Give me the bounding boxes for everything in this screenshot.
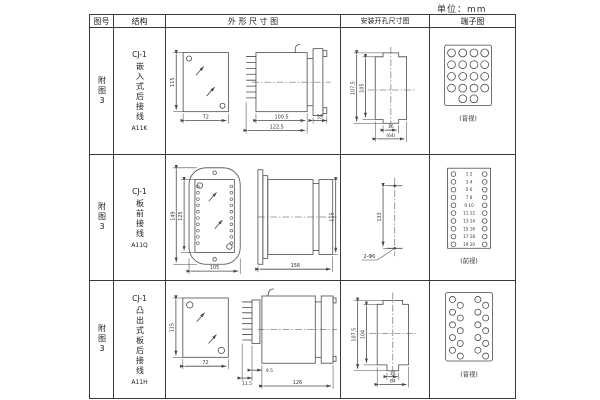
- mounting-cell-r2: 133 2-Φ6: [341, 155, 430, 281]
- fig-cell-r2: 附图3: [90, 155, 114, 281]
- terminal-drawing-a11k: (背视): [431, 29, 514, 154]
- header-mounting: 安装开孔尺寸图: [341, 15, 430, 28]
- lift-hook: [295, 44, 300, 52]
- mounting-drawing-a11k: 107.5 105 16 (64): [342, 29, 429, 154]
- terminal-drawing-a11q: 1 2 3 4 5 6 7 8 9 10 11 12 13 14 15 16 1…: [431, 156, 514, 280]
- outline-cell-r1: 115 72 100.5 122.5 35: [166, 28, 341, 155]
- fig-number: 附图3: [98, 76, 106, 107]
- terminal-numbers: 11 12: [463, 210, 475, 215]
- structure-cell-r3: CJ-1 凸出式板后接线 A11H: [114, 281, 166, 398]
- mounting-drawing-a11q: 133 2-Φ6: [342, 156, 429, 280]
- dim-front-width: 105: [209, 265, 218, 271]
- manual-page: 单位：mm 图号 结构 外 形 尺 寸 图 安装开孔尺寸图 端子图 附图3 CJ…: [0, 0, 600, 400]
- code-label: A11H: [131, 379, 147, 386]
- dim-front-height: 115: [169, 77, 175, 86]
- terminal-pins: [242, 302, 252, 340]
- header-structure: 结构: [114, 15, 166, 28]
- dim-front-width: 72: [202, 360, 208, 366]
- terminal-cell-r1: (背视): [430, 28, 515, 155]
- terminal-numbers: 3 4: [466, 179, 473, 184]
- fig-number: 附图3: [98, 202, 106, 233]
- dim-slot-width: 16: [390, 371, 396, 377]
- hole-spec-label: 2-Φ6: [363, 254, 375, 260]
- dim-cutout-inner-h: 104: [360, 330, 366, 339]
- fig-number: 附图3: [98, 324, 106, 355]
- polarity-mark: [195, 66, 203, 75]
- code-label: A11Q: [131, 242, 147, 249]
- dim-side-height: 115: [329, 212, 335, 221]
- dim-overall-width: 64: [390, 379, 396, 385]
- structure-cell-r2: CJ-1 板前接线 A11Q: [114, 155, 166, 281]
- dim-total-length: 122.5: [269, 124, 283, 130]
- polarity-mark: [196, 313, 204, 322]
- wiring-label: 嵌入式后接线: [136, 62, 144, 122]
- polarity-mark: [206, 87, 214, 96]
- fig-cell-r1: 附图3: [90, 28, 114, 155]
- dim-cutout-outer-h: 107.5: [350, 81, 356, 95]
- polarity-mark: [214, 219, 222, 228]
- dim-pin-stub: 11.5: [242, 381, 252, 387]
- polarity-mark: [208, 335, 216, 344]
- structure-cell-r1: CJ-1 嵌入式后接线 A11K: [114, 28, 166, 155]
- terminal-numbers: 17 18: [463, 234, 475, 239]
- terminal-numbers: 19 20: [463, 241, 475, 246]
- view-label: (背视): [460, 370, 478, 379]
- wiring-label: 凸出式板后接线: [136, 306, 144, 376]
- dim-front-height: 115: [169, 323, 175, 332]
- fig-cell-r3: 附图3: [90, 281, 114, 398]
- mounting-cell-r3: 107.5 104 16 64: [341, 281, 430, 398]
- dim-front-width: 72: [202, 114, 208, 120]
- dim-cutout-outer-h: 107.5: [351, 328, 357, 342]
- model-label: CJ-1: [132, 294, 147, 303]
- outline-drawing-a11k: 115 72 100.5 122.5 35: [167, 29, 340, 154]
- polarity-mark: [208, 192, 216, 201]
- lift-hook: [267, 289, 273, 296]
- outline-drawing-a11h: 115 72 9.5 11.5: [167, 282, 340, 397]
- outline-cell-r2: 149 125 105 156 115: [166, 155, 341, 281]
- mounting-cell-r1: 107.5 105 16 (64): [341, 28, 430, 155]
- terminal-cell-r2: 1 2 3 4 5 6 7 8 9 10 11 12 13 14 15 16 1…: [430, 155, 515, 281]
- dim-slot-width: 16: [388, 124, 394, 130]
- mounting-drawing-a11h: 107.5 104 16 64: [342, 282, 429, 397]
- dim-flange-height: 149: [170, 211, 176, 220]
- terminal-drawing-a11h: (背视): [431, 282, 514, 397]
- view-label: (前视): [460, 255, 478, 264]
- spec-table: 图号 结构 外 形 尺 寸 图 安装开孔尺寸图 端子图 附图3 CJ-1 嵌入式…: [89, 14, 516, 399]
- dim-side-length: 156: [290, 263, 299, 269]
- terminal-numbers: 1 2: [466, 171, 473, 176]
- dim-body-height: 125: [178, 211, 184, 220]
- header-terminal: 端子图: [430, 15, 515, 28]
- terminal-numbers: 9 10: [464, 202, 474, 207]
- terminal-pins: [246, 56, 256, 97]
- model-label: CJ-1: [132, 187, 147, 196]
- outline-cell-r3: 115 72 9.5 11.5: [166, 281, 341, 398]
- dim-cutout-inner-h: 105: [359, 83, 365, 92]
- terminal-numbers: 7 8: [466, 195, 473, 200]
- dim-body-length: 100.5: [274, 114, 288, 120]
- terminal-numbers: 15 16: [463, 226, 475, 231]
- code-label: A11K: [132, 125, 148, 132]
- outline-drawing-a11q: 149 125 105 156 115: [167, 156, 340, 280]
- dim-body-length: 126: [292, 380, 301, 386]
- header-fig: 图号: [90, 15, 114, 28]
- dim-overall-width: (64): [386, 132, 395, 138]
- terminal-numbers: 13 14: [463, 218, 475, 223]
- terminal-numbers: 5 6: [466, 187, 473, 192]
- header-outline: 外 形 尺 寸 图: [166, 15, 341, 28]
- dim-pin-offset: 9.5: [265, 368, 272, 374]
- model-label: CJ-1: [132, 50, 147, 59]
- view-label: (背视): [459, 113, 477, 122]
- wiring-label: 板前接线: [136, 199, 144, 239]
- terminal-cell-r3: (背视): [430, 281, 515, 398]
- dim-hole-distance: 133: [377, 212, 383, 221]
- dim-flange: 35: [316, 114, 322, 120]
